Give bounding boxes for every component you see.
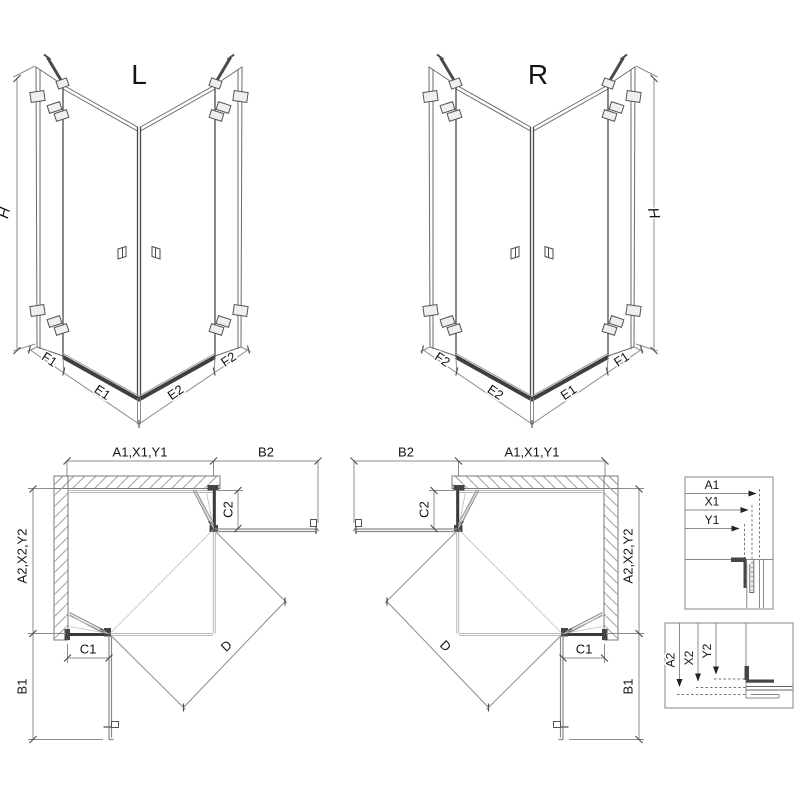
detail-label-y1: Y1: [705, 513, 720, 527]
dim-label-width-l: A1,X1,Y1: [113, 445, 168, 460]
iso-left-variant-label: L: [131, 59, 147, 90]
dim-label-b2-r: B2: [398, 445, 414, 460]
detail-label-y2: Y2: [700, 643, 714, 658]
plan-view-right: B2 A1,X1,Y1 C2 A2,X2,Y2 C1 B1 D: [351, 445, 645, 744]
iso-view-right: R H F2 E2 E1 F1: [421, 55, 663, 429]
dim-label-width-r: A1,X1,Y1: [505, 445, 560, 460]
dim-label-b1-l: B1: [15, 679, 30, 695]
dim-label-height-r: H: [644, 206, 663, 220]
dim-label-f1-r: F1: [611, 349, 632, 370]
plan-view-left: A1,X1,Y1 B2 C2 A2,X2,Y2 C1 B1 D: [15, 445, 322, 744]
plan-right-geometry: [351, 458, 645, 744]
dim-label-c1-r: C1: [576, 642, 593, 657]
plan-left-geometry: [28, 458, 322, 744]
dim-label-depth-r: A2,X2,Y2: [621, 529, 636, 584]
detail-label-a1: A1: [705, 478, 720, 492]
dim-label-c1-l: C1: [80, 642, 97, 657]
detail-view-widths: A1 X1 Y1: [685, 477, 773, 609]
detail-label-x2: X2: [682, 650, 696, 665]
dim-label-diagonal-r: D: [437, 637, 454, 654]
detail-view-depths: A2 X2 Y2: [664, 623, 794, 708]
dim-label-f1-l: F1: [39, 349, 60, 370]
dim-label-diagonal-l: D: [218, 637, 235, 654]
iso-view-left: L H F1 E1 E2 F2: [0, 55, 250, 429]
dim-label-f2-r: F2: [432, 349, 453, 370]
dim-label-f2-l: F2: [218, 349, 239, 370]
dim-label-b2-l: B2: [258, 445, 274, 460]
shower-enclosure-diagram: L H F1 E1 E2 F2 R H F2 E2 E1 F1 A1,X1,Y1…: [0, 0, 800, 800]
iso-right-variant-label: R: [528, 59, 548, 90]
dim-label-c2-r: C2: [417, 501, 432, 518]
iso-right-geometry: [421, 55, 658, 429]
technical-drawing-page: L H F1 E1 E2 F2 R H F2 E2 E1 F1 A1,X1,Y1…: [0, 0, 800, 800]
iso-left-geometry: [14, 55, 251, 429]
dim-label-depth-l: A2,X2,Y2: [15, 529, 30, 584]
detail-label-x1: X1: [705, 495, 720, 509]
detail-label-a2: A2: [664, 652, 678, 667]
dim-label-height-l: H: [0, 206, 14, 220]
dim-label-b1-r: B1: [621, 679, 636, 695]
dim-label-c2-l: C2: [221, 501, 236, 518]
